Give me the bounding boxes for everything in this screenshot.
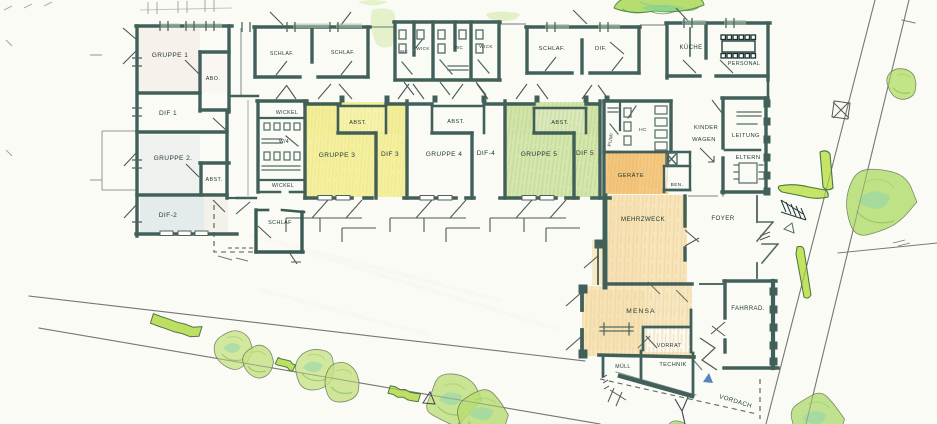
svg-text:PERSONAL: PERSONAL	[728, 61, 761, 67]
svg-text:FAHRRAD.: FAHRRAD.	[731, 306, 765, 312]
svg-text:GERÄTE: GERÄTE	[618, 172, 644, 179]
svg-text:MÜLL: MÜLL	[615, 363, 630, 370]
svg-text:DIF-4: DIF-4	[477, 150, 495, 157]
svg-text:GRUPPE 3: GRUPPE 3	[319, 152, 356, 159]
svg-text:WC: WC	[455, 45, 464, 50]
svg-text:VORRAT: VORRAT	[657, 343, 682, 349]
svg-text:SCHLAF: SCHLAF	[268, 220, 292, 226]
svg-text:DIF 1: DIF 1	[159, 110, 177, 117]
svg-text:HC: HC	[639, 127, 647, 133]
svg-text:ELTERN: ELTERN	[736, 155, 761, 161]
svg-text:LEITUNG: LEITUNG	[732, 133, 760, 139]
svg-text:SCHLAF.: SCHLAF.	[539, 46, 566, 52]
svg-text:WICKEL: WICKEL	[272, 183, 294, 189]
svg-text:WICK: WICK	[416, 46, 430, 51]
svg-text:WC: WC	[400, 49, 409, 54]
svg-text:GRUPPE 5: GRUPPE 5	[521, 151, 558, 158]
svg-text:DIF 5: DIF 5	[576, 150, 594, 157]
svg-text:ABST.: ABST.	[551, 120, 569, 126]
svg-text:GRUPPE 2.: GRUPPE 2.	[154, 155, 193, 162]
svg-text:SCHLAF.: SCHLAF.	[331, 50, 355, 56]
svg-text:MEHRZWECK: MEHRZWECK	[621, 216, 666, 223]
svg-text:WAGEN: WAGEN	[692, 137, 716, 143]
svg-text:ABO.: ABO.	[206, 76, 220, 82]
svg-text:GRUPPE 4: GRUPPE 4	[426, 151, 463, 158]
svg-text:W/4: W/4	[279, 139, 289, 145]
svg-text:BEN.: BEN.	[671, 182, 684, 188]
svg-text:GRUPPE 1: GRUPPE 1	[152, 52, 189, 59]
svg-text:ABST.: ABST.	[447, 119, 465, 125]
svg-text:SCHLAF.: SCHLAF.	[270, 51, 294, 57]
svg-text:ABST.: ABST.	[349, 120, 367, 126]
svg-text:WICK: WICK	[479, 44, 493, 49]
svg-text:KÜCHE: KÜCHE	[679, 44, 702, 51]
svg-text:TECHNIK: TECHNIK	[659, 362, 686, 368]
svg-text:DIF.: DIF.	[595, 46, 607, 52]
svg-text:DIF 3: DIF 3	[381, 151, 399, 158]
svg-text:WICKEL: WICKEL	[276, 110, 298, 116]
svg-text:MENSA: MENSA	[626, 308, 655, 315]
svg-text:DIF-2: DIF-2	[159, 212, 177, 219]
svg-text:FOYER: FOYER	[711, 215, 734, 222]
svg-text:KINDER: KINDER	[694, 125, 718, 131]
svg-text:ABST.: ABST.	[206, 177, 223, 183]
